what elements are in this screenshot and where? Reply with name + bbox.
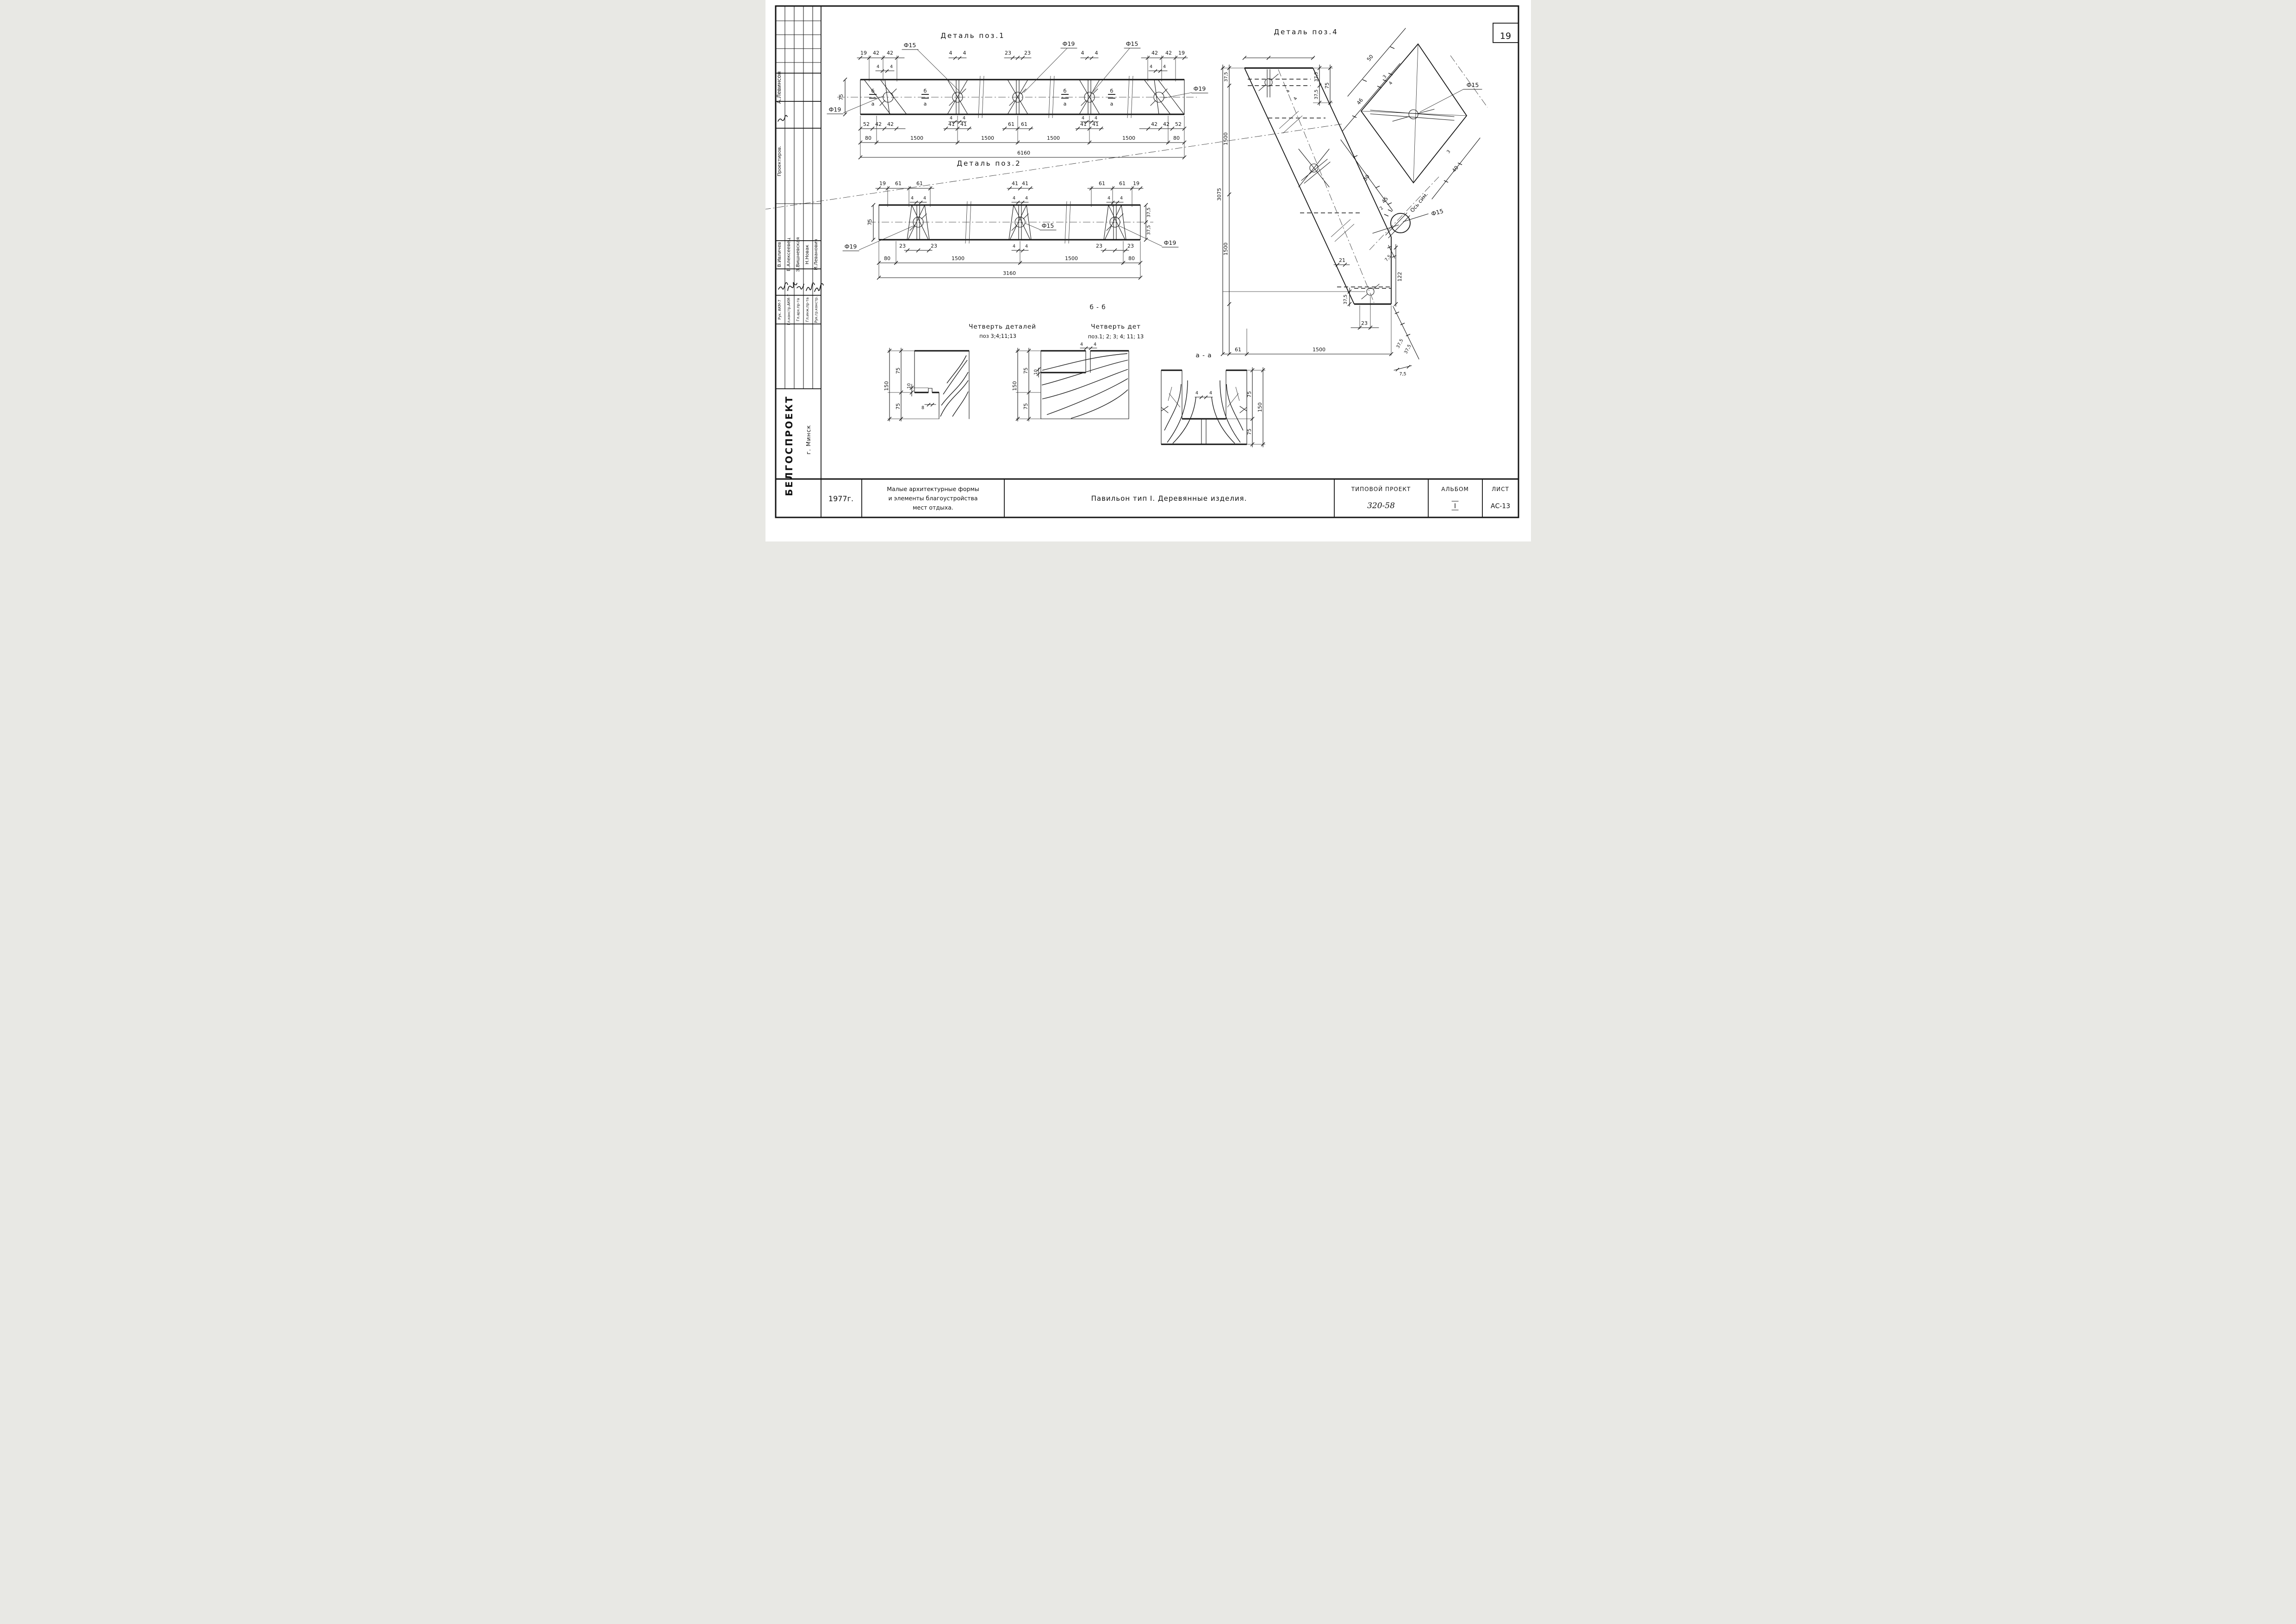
quarter2-title: Четверть дет [1091, 323, 1141, 330]
svg-text:23: 23 [1024, 50, 1031, 56]
svg-text:42: 42 [887, 121, 894, 127]
quarter-detail-1: 150 75 10 75 8 [884, 348, 969, 421]
poz2-height: 75 [867, 219, 873, 225]
section-mark-ba: б а б а б а б а [869, 88, 1115, 107]
svg-text:21: 21 [1339, 257, 1345, 263]
poz4-topright-dims: 37,5 37,5 75 4 4 [1243, 56, 1333, 106]
sections: б - б Четверть деталей поз 3;4;11;13 Чет… [884, 304, 1265, 447]
svg-text:Ф15: Ф15 [1126, 40, 1138, 47]
svg-text:37,5: 37,5 [1146, 207, 1151, 217]
sidebar-person-role: Рук. АКМ-7 [778, 299, 782, 319]
svg-text:150: 150 [884, 381, 890, 391]
svg-text:2: 2 [1379, 205, 1384, 211]
svg-text:4: 4 [1293, 96, 1299, 101]
section-aa-title: а - а [1195, 352, 1212, 359]
svg-text:61: 61 [916, 180, 923, 187]
poz1-bottom-dims: 4 4 4 4 52 42 42 41 41 61 61 41 41 42 [838, 78, 1186, 159]
svg-text:37,5: 37,5 [1314, 89, 1319, 99]
svg-text:150: 150 [1012, 381, 1018, 391]
frame: 19 [776, 6, 1518, 517]
poz4-bottom-dims: 37,5 122 23 21 61 1500 37,5 37,5 7,5 [1223, 244, 1419, 377]
svg-text:4: 4 [1080, 342, 1083, 347]
stamp-typical-project-number: 320-58 [1367, 501, 1395, 510]
stamp-sheet-code: АС-13 [1490, 503, 1510, 510]
svg-text:4: 4 [876, 64, 879, 69]
hole-callouts: Ф15 Ф19 Ф15 Ф19 Ф19 [827, 40, 1208, 114]
svg-text:1500: 1500 [910, 135, 923, 141]
svg-text:41: 41 [1092, 121, 1099, 127]
svg-text:а: а [1110, 101, 1113, 107]
svg-text:Ф19: Ф19 [828, 106, 841, 113]
poz2-bottom-dims: 23 23 4 4 23 23 80 1500 1500 80 3160 [877, 241, 1142, 280]
svg-text:4: 4 [1025, 196, 1027, 201]
svg-text:75: 75 [1324, 82, 1330, 89]
svg-text:23: 23 [1127, 243, 1134, 249]
svg-text:а: а [923, 101, 927, 107]
stamp-project-desc: Малые архитектурные формы [887, 485, 979, 492]
svg-text:61: 61 [1099, 180, 1105, 187]
sidebar-top-name: А.Левинсон [776, 71, 782, 104]
svg-text:Ось сим.: Ось сим. [1409, 191, 1429, 214]
svg-text:1500: 1500 [1065, 255, 1078, 261]
svg-text:23: 23 [1361, 320, 1368, 326]
svg-text:4: 4 [1195, 391, 1198, 396]
svg-text:4: 4 [1285, 89, 1291, 93]
svg-text:1500: 1500 [1047, 135, 1060, 141]
stamp-typical-project-label: ТИПОВОЙ ПРОЕКТ [1350, 485, 1410, 492]
svg-text:42: 42 [875, 121, 882, 127]
sheet-number: 19 [1500, 31, 1511, 41]
svg-text:4: 4 [1120, 196, 1122, 201]
svg-text:а: а [1063, 101, 1066, 107]
svg-text:23: 23 [1005, 50, 1011, 56]
svg-text:80: 80 [865, 135, 871, 141]
svg-text:19: 19 [1178, 50, 1185, 56]
quarter1-subtitle: поз 3;4;11;13 [979, 333, 1016, 339]
svg-text:37,5: 37,5 [1314, 72, 1319, 81]
svg-text:41: 41 [1012, 180, 1018, 187]
svg-text:122: 122 [1397, 272, 1403, 282]
svg-text:1500: 1500 [1313, 347, 1325, 353]
signature [797, 284, 804, 289]
organization-name: БЕЛГОСПРОЕКТ [784, 395, 795, 496]
svg-text:75: 75 [838, 94, 844, 100]
svg-text:52: 52 [1175, 121, 1182, 127]
svg-text:42: 42 [873, 50, 879, 56]
svg-text:4: 4 [1163, 64, 1165, 69]
svg-text:80: 80 [1128, 255, 1135, 261]
svg-text:1500: 1500 [1223, 132, 1229, 145]
svg-text:4: 4 [1149, 64, 1152, 69]
sidebar-person-name: В.Алексеевец [786, 238, 791, 271]
detail-poz2: Деталь поз.2 19 61 61 41 41 [843, 159, 1178, 280]
svg-text:4: 4 [923, 196, 926, 201]
svg-text:52: 52 [863, 121, 870, 127]
svg-text:1500: 1500 [1122, 135, 1135, 141]
blueprint-sheet: 19 А.Левинсон Проектиров. В.Ивличев В.Ал… [765, 0, 1531, 541]
stamp-project-desc: и элементы благоустройства [888, 495, 977, 502]
svg-text:4: 4 [1081, 50, 1084, 56]
svg-text:Ф15: Ф15 [1041, 222, 1054, 229]
svg-text:8: 8 [921, 405, 924, 411]
svg-text:Ф19: Ф19 [1193, 85, 1206, 92]
svg-text:Ф19: Ф19 [1164, 239, 1176, 246]
svg-text:42: 42 [1151, 121, 1157, 127]
svg-text:50: 50 [1366, 54, 1375, 62]
svg-text:1500: 1500 [1223, 243, 1229, 255]
svg-text:4: 4 [949, 50, 952, 56]
svg-text:1500: 1500 [952, 255, 964, 261]
poz2-title: Деталь поз.2 [957, 159, 1021, 168]
svg-text:Ф15: Ф15 [1430, 207, 1444, 217]
svg-text:4: 4 [1012, 196, 1015, 201]
svg-text:4: 4 [963, 50, 966, 56]
svg-text:4: 4 [1012, 244, 1015, 249]
svg-text:4: 4 [1094, 116, 1097, 121]
svg-text:37,5: 37,5 [1395, 338, 1404, 349]
svg-text:Ф19: Ф19 [844, 243, 857, 250]
svg-text:10: 10 [907, 383, 912, 389]
svg-text:4: 4 [1081, 116, 1084, 121]
svg-text:4: 4 [910, 196, 913, 201]
poz4-title: Деталь поз.4 [1274, 28, 1338, 36]
svg-text:4: 4 [962, 116, 965, 121]
sidebar-person-name: Э.Вишневская [796, 237, 801, 272]
svg-text:61: 61 [895, 180, 902, 187]
svg-text:4: 4 [1093, 342, 1096, 347]
svg-text:3075: 3075 [1216, 188, 1222, 201]
svg-text:4: 4 [890, 64, 892, 69]
svg-text:41: 41 [1080, 121, 1087, 127]
detail-poz1: Деталь поз.1 б а б а [827, 31, 1208, 159]
svg-text:80: 80 [884, 255, 890, 261]
svg-text:10: 10 [1033, 369, 1039, 375]
svg-text:4: 4 [1107, 196, 1110, 201]
svg-text:23: 23 [1096, 243, 1102, 249]
svg-text:3: 3 [1446, 149, 1451, 155]
signature [778, 115, 787, 121]
svg-text:61: 61 [1235, 347, 1241, 353]
svg-text:80: 80 [1173, 135, 1180, 141]
svg-text:6160: 6160 [1017, 150, 1030, 156]
svg-text:4: 4 [1095, 50, 1098, 56]
svg-text:75: 75 [895, 367, 901, 374]
svg-text:46: 46 [1356, 97, 1364, 106]
sidebar-person-role: Рук.гр.констр. [814, 296, 818, 323]
svg-text:61: 61 [1119, 180, 1126, 187]
poz4-left-dims: 37,5 1500 1500 3075 [1216, 65, 1244, 356]
section-bb-title: б - б [1089, 304, 1106, 311]
svg-text:4: 4 [949, 116, 952, 121]
poz1-title: Деталь поз.1 [940, 31, 1005, 40]
signature [806, 283, 815, 291]
quarter2-subtitle: поз.1; 2; 3; 4; 11; 13 [1088, 333, 1144, 340]
section-aa: 4 4 75 75 150 [1161, 367, 1265, 447]
stamp-sheet-label: ЛИСТ [1492, 486, 1509, 492]
quarter1-title: Четверть деталей [969, 323, 1036, 330]
svg-text:б: б [1063, 88, 1066, 94]
quarter-detail-2: 150 75 10 75 4 4 [1012, 342, 1129, 421]
stamp-sheet-title: Павильон тип I. Деревянные изделия. [1091, 494, 1247, 503]
svg-text:42: 42 [887, 50, 893, 56]
stamp-year: 1977г. [828, 494, 853, 503]
svg-text:37,5: 37,5 [1343, 294, 1348, 304]
stamp-album-label: АЛЬБОМ [1441, 486, 1469, 492]
svg-text:61: 61 [1008, 121, 1014, 127]
svg-text:Ф19: Ф19 [1062, 40, 1075, 47]
svg-text:а: а [871, 101, 874, 107]
organization-city: г. Минск [805, 425, 812, 454]
sidebar-person-role: Гл.констр.АКМ-7 [787, 294, 791, 325]
svg-text:23: 23 [931, 243, 937, 249]
svg-text:б: б [923, 88, 927, 94]
svg-text:75: 75 [1023, 403, 1029, 410]
svg-text:37,5: 37,5 [1146, 225, 1151, 235]
sidebar-person-role: Гл.арх.пр-та [796, 298, 800, 321]
svg-text:75: 75 [1246, 429, 1252, 435]
svg-text:Ф15: Ф15 [1466, 81, 1479, 88]
title-block: 1977г. Малые архитектурные формы и элеме… [776, 479, 1518, 517]
sidebar-top-role: Проектиров. [777, 146, 782, 176]
svg-text:4: 4 [1025, 244, 1027, 249]
svg-text:61: 61 [1021, 121, 1027, 127]
svg-text:40: 40 [1451, 165, 1460, 174]
svg-text:4: 4 [1209, 391, 1212, 396]
sidebar-person-name: И.Леванович [814, 239, 819, 270]
svg-text:19: 19 [879, 180, 886, 187]
signature [815, 284, 823, 292]
sidebar-person-name: Н.Новак [805, 245, 810, 264]
poz2-top-dims: 19 61 61 41 41 61 61 19 4 4 4 4 4 4 [876, 180, 1143, 207]
poz4-circle-detail: Ось сим. Ф15 2 7,5 [1369, 177, 1444, 262]
signature [778, 283, 788, 290]
svg-text:19: 19 [1133, 180, 1139, 187]
sidebar-person-name: В.Ивличев [777, 242, 782, 267]
svg-text:Ф15: Ф15 [903, 42, 916, 49]
svg-text:41: 41 [948, 121, 955, 127]
svg-text:23: 23 [899, 243, 906, 249]
stamp-project-desc: мест отдыха. [913, 504, 953, 511]
svg-text:7,5: 7,5 [1399, 372, 1406, 377]
sidebar: А.Левинсон Проектиров. В.Ивличев В.Алекс… [776, 6, 823, 517]
svg-text:75: 75 [1023, 367, 1029, 374]
svg-text:41: 41 [1022, 180, 1028, 187]
svg-text:42: 42 [1151, 50, 1158, 56]
svg-text:45: 45 [1381, 196, 1389, 205]
svg-text:19: 19 [860, 50, 867, 56]
svg-text:75: 75 [895, 403, 901, 410]
svg-text:4: 4 [1388, 81, 1394, 86]
svg-text:б: б [1110, 88, 1113, 94]
signature [788, 282, 797, 291]
svg-text:42: 42 [1163, 121, 1170, 127]
svg-text:42: 42 [1165, 50, 1172, 56]
svg-text:37,5: 37,5 [1403, 344, 1412, 355]
svg-text:41: 41 [960, 121, 967, 127]
svg-text:3160: 3160 [1003, 270, 1016, 276]
svg-text:30: 30 [1362, 174, 1371, 182]
svg-text:1500: 1500 [981, 135, 994, 141]
svg-text:б: б [871, 88, 874, 94]
svg-text:37,5: 37,5 [1224, 72, 1229, 81]
sidebar-person-role: Гл.инж.пр-та [805, 298, 809, 322]
svg-text:75: 75 [1246, 391, 1252, 398]
stamp-album-number: I [1454, 503, 1456, 510]
svg-text:150: 150 [1257, 403, 1263, 412]
poz1-top-dims: 19 42 42 4 4 4 4 23 23 4 4 42 42 19 [857, 50, 1188, 81]
